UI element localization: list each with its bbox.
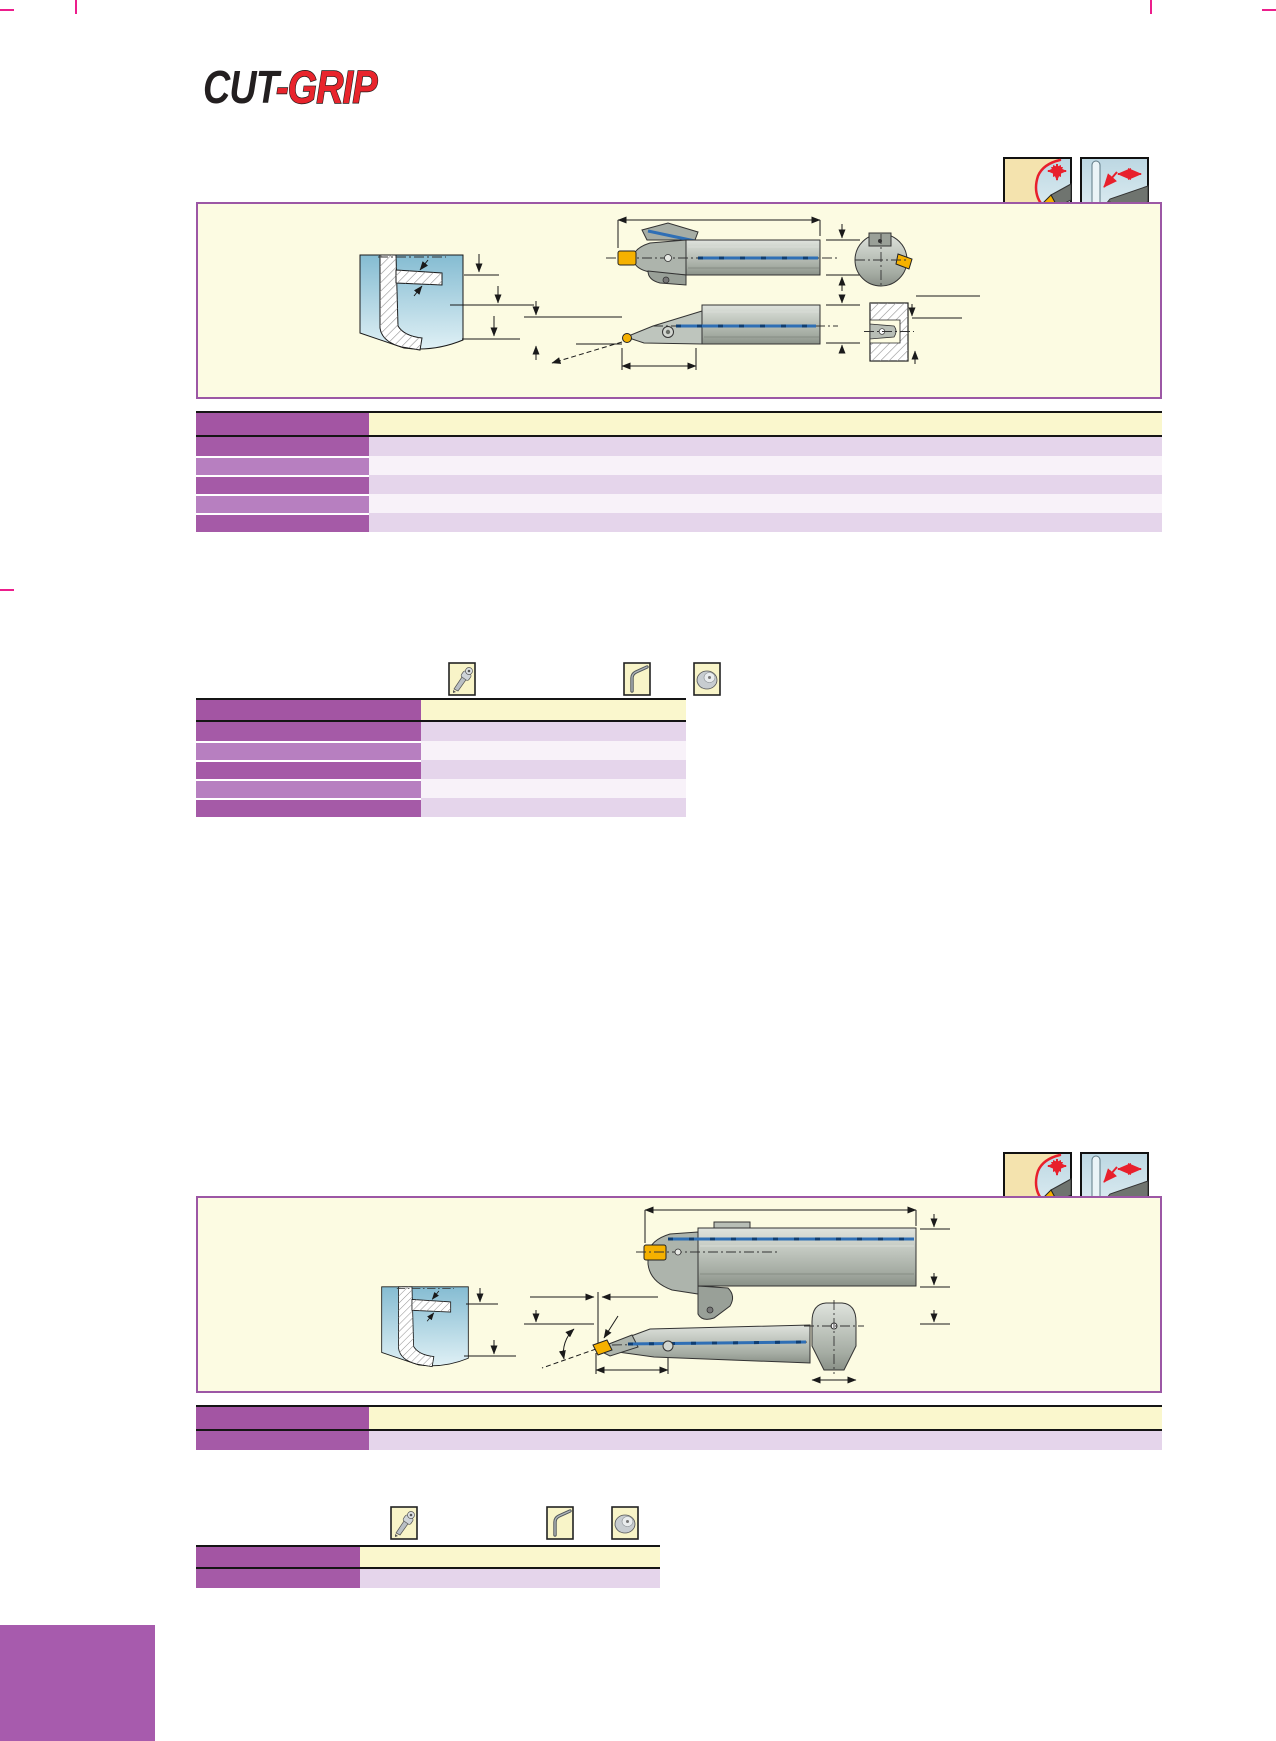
row-label-cell xyxy=(196,1569,360,1588)
table-row xyxy=(196,798,686,817)
logo-grip: -GRIP xyxy=(276,61,377,113)
header-label-cell xyxy=(196,413,369,435)
table-row xyxy=(196,760,686,779)
workpiece-cross-section-drawing xyxy=(382,1287,469,1367)
internal-grooving-tool-side-view xyxy=(606,223,838,285)
header-values-cell xyxy=(360,1547,660,1567)
row-label-cell xyxy=(196,494,369,513)
row-value-cell xyxy=(421,722,686,741)
brand-logo: CUT-GRIP xyxy=(203,64,377,110)
row-label-cell xyxy=(196,741,421,760)
row-label-cell xyxy=(196,513,369,532)
table-header-row xyxy=(196,413,1162,437)
row-value-cell xyxy=(369,475,1162,494)
workpiece-cross-section-drawing xyxy=(360,255,463,350)
row-label-cell xyxy=(196,1431,369,1450)
row-value-cell xyxy=(421,760,686,779)
table-row xyxy=(196,475,1162,494)
table-header-row xyxy=(196,1547,660,1569)
row-value-cell xyxy=(369,437,1162,456)
table-row xyxy=(196,456,1162,475)
groove-cross-section-view xyxy=(864,303,914,361)
header-label-cell xyxy=(196,700,421,720)
hex-key-icon xyxy=(623,662,651,696)
clamp-screw-icon xyxy=(693,662,721,696)
torx-driver-icon xyxy=(448,662,476,696)
row-value-cell xyxy=(369,494,1162,513)
table-row xyxy=(196,513,1162,532)
spare-parts-table xyxy=(196,1545,660,1588)
header-values-cell xyxy=(369,413,1162,435)
row-label-cell xyxy=(196,475,369,494)
row-label-cell xyxy=(196,779,421,798)
table-row xyxy=(196,494,1162,513)
table-row xyxy=(196,722,686,741)
torx-driver-icon xyxy=(390,1506,418,1540)
table-row xyxy=(196,1569,660,1588)
tool-diagram-panel xyxy=(196,202,1162,399)
row-value-cell xyxy=(369,456,1162,475)
table-row xyxy=(196,1431,1162,1450)
clamp-screw-icon xyxy=(611,1506,639,1540)
catalog-page: CUT-GRIP xyxy=(0,0,1276,1741)
row-value-cell xyxy=(369,1431,1162,1450)
row-value-cell xyxy=(421,798,686,817)
tool-front-view xyxy=(855,233,912,286)
table-header-row xyxy=(196,700,686,722)
crop-mark xyxy=(1150,0,1152,14)
header-values-cell xyxy=(369,1407,1162,1429)
table-header-row xyxy=(196,1407,1162,1431)
crop-mark xyxy=(0,9,14,11)
row-label-cell xyxy=(196,722,421,741)
hex-key-icon xyxy=(546,1506,574,1540)
logo-cut: CUT xyxy=(203,61,276,113)
row-label-cell xyxy=(196,760,421,779)
row-value-cell xyxy=(421,779,686,798)
internal-profiling-tool-angled-view xyxy=(593,1325,810,1363)
crop-mark xyxy=(1262,9,1276,11)
table-row xyxy=(196,437,1162,456)
tool-front-view xyxy=(804,1300,864,1374)
spare-parts-table xyxy=(196,698,686,817)
face-grooving-tool-side-view xyxy=(636,1222,916,1319)
tool-dimensions-table xyxy=(196,411,1162,532)
table-row xyxy=(196,779,686,798)
table-row xyxy=(196,741,686,760)
tool-diagram-panel xyxy=(196,1196,1162,1393)
header-label-cell xyxy=(196,1407,369,1429)
crop-mark xyxy=(75,0,77,14)
row-value-cell xyxy=(421,741,686,760)
page-corner-block xyxy=(0,1625,155,1741)
row-label-cell xyxy=(196,437,369,456)
row-label-cell xyxy=(196,456,369,475)
internal-profiling-tool-side-view xyxy=(623,305,839,344)
crop-mark xyxy=(0,589,14,591)
row-value-cell xyxy=(369,513,1162,532)
row-value-cell xyxy=(360,1569,660,1588)
row-label-cell xyxy=(196,798,421,817)
tool-dimensions-table xyxy=(196,1405,1162,1450)
header-values-cell xyxy=(421,700,686,720)
header-label-cell xyxy=(196,1547,360,1567)
